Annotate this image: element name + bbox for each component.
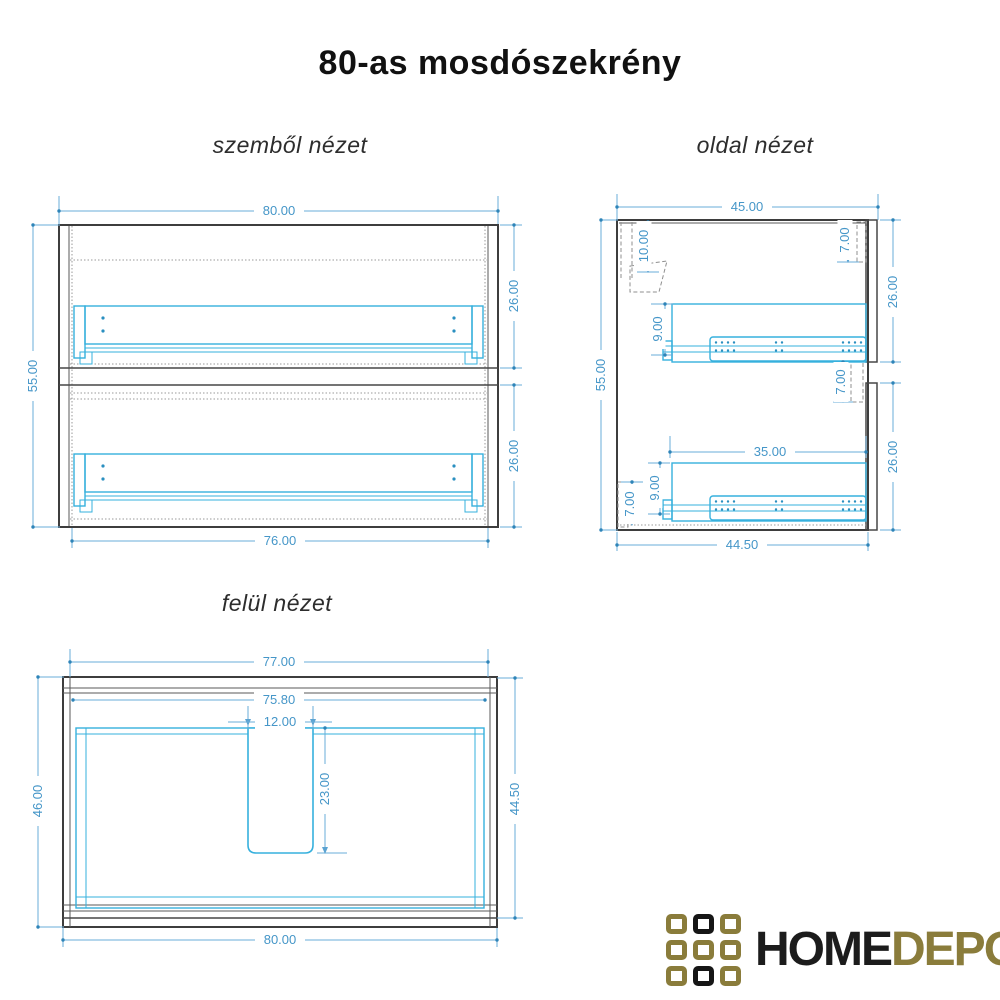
- front-lower-drawer-rail: [74, 454, 483, 512]
- logo-square: [666, 914, 687, 934]
- dim-front-lower-drawer: 26.00: [506, 440, 521, 473]
- front-upper-drawer-rail: [74, 306, 483, 364]
- dim-front-upper-drawer: 26.00: [506, 280, 521, 313]
- logo-square: [720, 966, 741, 986]
- dim-top-inner-width: 75.80: [263, 692, 296, 707]
- logo-square: [693, 966, 714, 986]
- dim-side-overall-depth: 45.00: [731, 199, 764, 214]
- dim-top-overall-width: 80.00: [264, 932, 297, 947]
- logo-wordmark: HOMEDEPO: [755, 926, 1000, 974]
- logo-grid-icon: [666, 914, 741, 986]
- side-upper-drawer-rail: [663, 304, 866, 362]
- dim-side-top-front-gap: 7.00: [837, 227, 852, 252]
- logo-text-depo: DEPO: [891, 923, 1000, 976]
- dim-side-upper-rail-offset: 9.00: [650, 316, 665, 341]
- technical-drawing: 80.00 55.00 26.00 26.00 76.00: [0, 0, 1000, 1000]
- side-view-drawing: 45.00 55.00 10.00 7.00 26.00: [593, 194, 901, 553]
- logo-square: [693, 914, 714, 934]
- dim-side-hanger-offset: 10.00: [636, 230, 651, 263]
- dim-side-bottom-back-gap: 7.00: [622, 491, 637, 516]
- dim-top-body-width: 77.00: [263, 654, 296, 669]
- dim-side-lower-rail-offset: 9.00: [647, 475, 662, 500]
- logo-square: [720, 940, 741, 960]
- dim-side-upper-drawer: 26.00: [885, 276, 900, 309]
- dim-top-inner-depth: 44.50: [507, 783, 522, 816]
- logo-square: [666, 966, 687, 986]
- side-view-dimensions: 45.00 55.00 10.00 7.00 26.00: [593, 194, 901, 553]
- dim-front-inner-width: 76.00: [264, 533, 297, 548]
- logo-square: [693, 940, 714, 960]
- logo-square: [720, 914, 741, 934]
- dim-front-overall-width: 80.00: [263, 203, 296, 218]
- dim-side-drawer-depth: 35.00: [754, 444, 787, 459]
- siphon-cutout: [248, 728, 313, 853]
- dim-side-overall-height: 55.00: [593, 359, 608, 392]
- front-view-drawing: 80.00 55.00 26.00 26.00 76.00: [25, 196, 522, 549]
- logo-square: [666, 940, 687, 960]
- dim-side-inner-depth: 44.50: [726, 537, 759, 552]
- logo-text-home: HOME: [755, 923, 891, 976]
- dim-top-overall-depth: 46.00: [30, 785, 45, 818]
- dim-front-overall-height: 55.00: [25, 360, 40, 393]
- dim-top-cutout-depth: 23.00: [317, 773, 332, 806]
- homedepo-logo: HOMEDEPO: [666, 914, 1000, 986]
- dim-side-lower-drawer: 26.00: [885, 441, 900, 474]
- top-view-drawing: 77.00 75.80 12.00 23.00 46.00: [30, 649, 523, 948]
- dim-side-mid-front-gap: 7.00: [833, 369, 848, 394]
- side-lower-drawer-rail: [663, 463, 866, 521]
- dim-top-cutout-width: 12.00: [264, 714, 297, 729]
